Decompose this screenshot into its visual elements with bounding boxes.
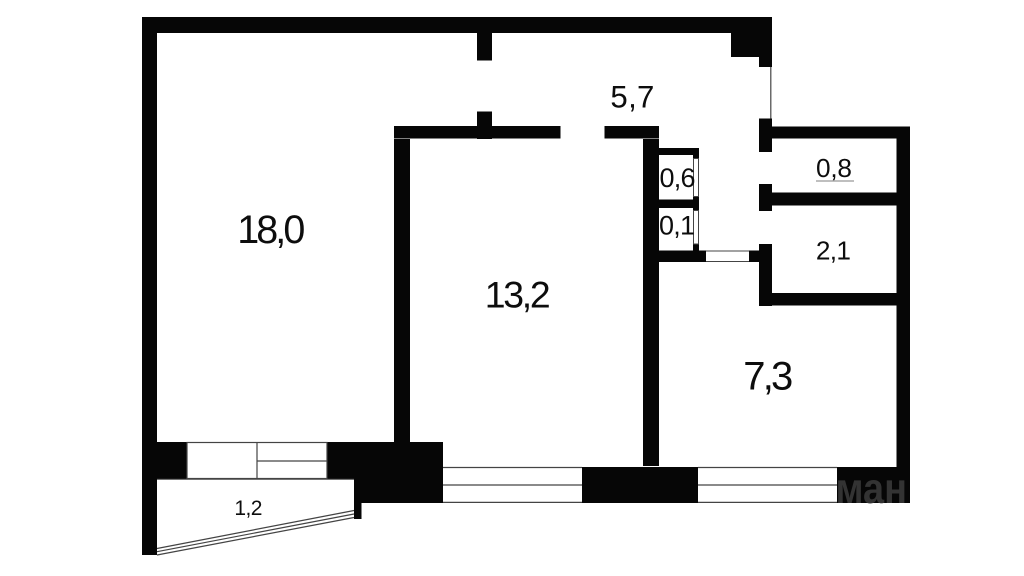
svg-text:2,1: 2,1 (816, 236, 851, 266)
svg-text:18,0: 18,0 (237, 208, 305, 252)
svg-text:1,2: 1,2 (234, 497, 262, 520)
svg-text:0,6: 0,6 (660, 163, 696, 193)
svg-text:7,3: 7,3 (743, 355, 793, 399)
svg-text:13,2: 13,2 (485, 273, 551, 315)
svg-text:0,1: 0,1 (659, 211, 695, 241)
svg-text:5,7: 5,7 (610, 79, 654, 114)
svg-text:ман: ман (836, 465, 908, 513)
svg-text:0,8: 0,8 (816, 153, 852, 183)
